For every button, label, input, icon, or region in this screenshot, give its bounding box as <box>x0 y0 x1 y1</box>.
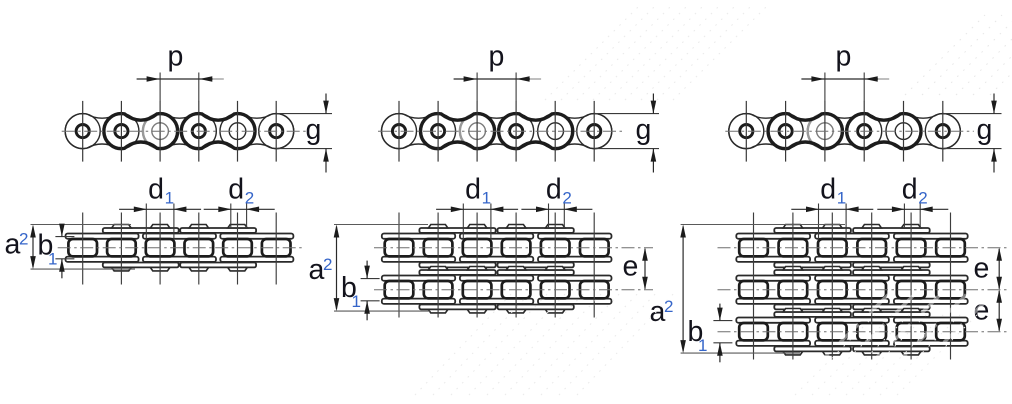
svg-text:d: d <box>148 174 164 206</box>
svg-text:2: 2 <box>918 189 927 208</box>
svg-text:1: 1 <box>837 189 846 208</box>
svg-text:p: p <box>168 41 184 73</box>
svg-text:1: 1 <box>698 336 707 355</box>
svg-text:2: 2 <box>562 189 571 208</box>
svg-text:g: g <box>636 114 652 146</box>
svg-text:2: 2 <box>323 255 332 274</box>
svg-text:d: d <box>465 174 481 206</box>
svg-text:p: p <box>836 41 852 73</box>
svg-text:e: e <box>974 253 990 285</box>
svg-text:1: 1 <box>352 292 361 311</box>
svg-text:p: p <box>489 41 505 73</box>
svg-text:d: d <box>820 174 836 206</box>
svg-text:d: d <box>902 174 918 206</box>
svg-text:g: g <box>977 114 993 146</box>
svg-text:d: d <box>546 174 562 206</box>
svg-text:g: g <box>306 114 322 146</box>
svg-text:1: 1 <box>165 189 174 208</box>
svg-text:1: 1 <box>482 189 491 208</box>
svg-text:d: d <box>228 174 244 206</box>
svg-text:1: 1 <box>48 250 57 269</box>
svg-text:2: 2 <box>664 297 673 316</box>
svg-text:2: 2 <box>245 189 254 208</box>
svg-text:2: 2 <box>19 230 28 249</box>
svg-text:e: e <box>623 251 639 283</box>
